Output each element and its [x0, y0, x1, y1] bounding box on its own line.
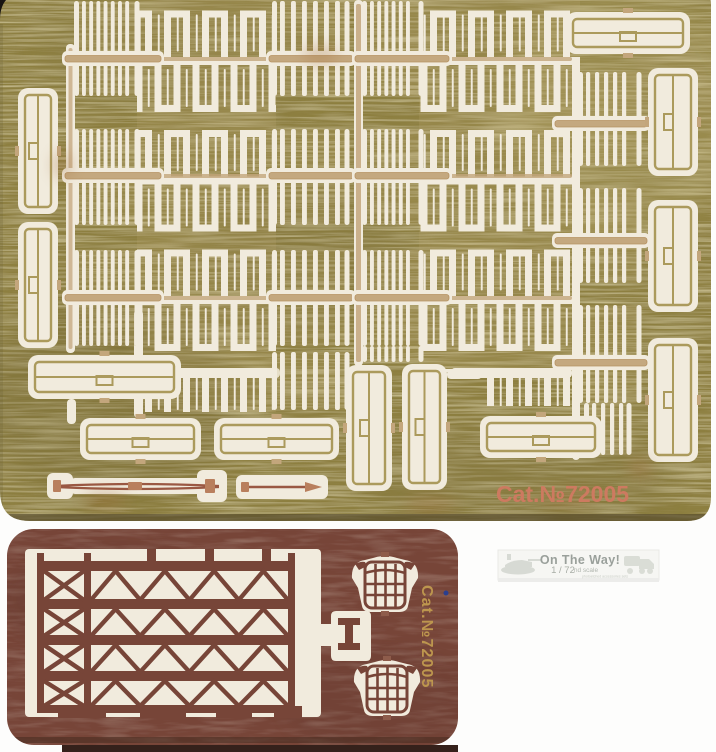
svg-text:Cat.№72005: Cat.№72005 — [418, 585, 435, 689]
svg-text:Cat.№72005: Cat.№72005 — [496, 481, 629, 507]
svg-text:nd scale: nd scale — [574, 567, 599, 574]
svg-text:photoetched accessories sets: photoetched accessories sets — [582, 575, 628, 579]
svg-text:1 / 72: 1 / 72 — [551, 565, 575, 576]
